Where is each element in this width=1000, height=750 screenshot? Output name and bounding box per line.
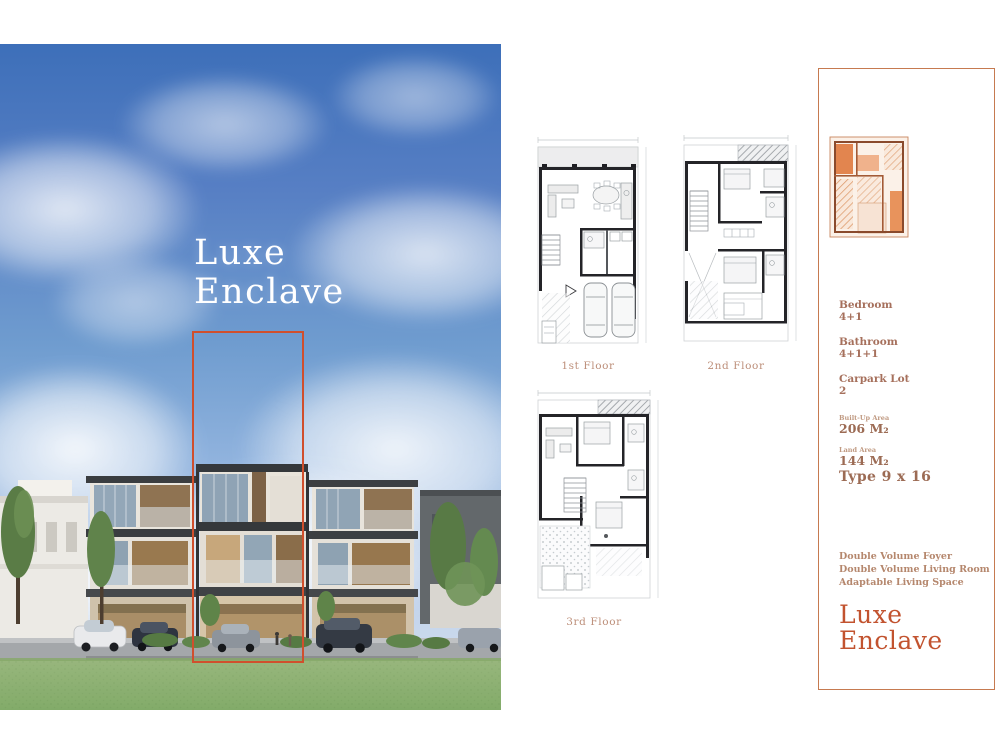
floor-plan-third-label: 3rd Floor xyxy=(520,616,668,628)
feature-item: Double Volume Foyer xyxy=(839,550,990,563)
spec-bathroom-label: Bathroom xyxy=(839,336,910,348)
brochure-page: Luxe Enclave xyxy=(0,0,1000,750)
unit-highlight-box xyxy=(192,331,304,663)
feature-item: Double Volume Living Room xyxy=(839,563,990,576)
hero-title: Luxe Enclave xyxy=(194,234,345,312)
spec-bedroom-label: Bedroom xyxy=(839,299,910,311)
spec-carpark-value: 2 xyxy=(839,385,910,397)
feature-list: Double Volume Foyer Double Volume Living… xyxy=(839,550,990,589)
floor-plan-second-drawing xyxy=(666,131,806,351)
spec-carpark-label: Carpark Lot xyxy=(839,373,910,385)
area-land-value: 144 M₂ xyxy=(839,454,889,468)
panel-title-line1: Luxe xyxy=(839,602,943,628)
floor-plan-third-drawing xyxy=(520,386,668,607)
spec-carpark: Carpark Lot 2 xyxy=(839,373,910,397)
hero-title-line1: Luxe xyxy=(194,234,345,273)
area-land: Land Area 144 M₂ xyxy=(839,447,889,468)
floor-plan-second-label: 2nd Floor xyxy=(666,360,806,372)
spec-bedroom-value: 4+1 xyxy=(839,311,910,323)
floor-plan-third: 3rd Floor xyxy=(520,386,668,628)
floor-plan-first-label: 1st Floor xyxy=(522,360,654,372)
spec-bathroom-value: 4+1+1 xyxy=(839,348,910,360)
spec-list: Bedroom 4+1 Bathroom 4+1+1 Carpark Lot 2 xyxy=(839,299,910,410)
floor-plan-first: 1st Floor xyxy=(522,133,654,372)
hero-title-line2: Enclave xyxy=(194,273,345,312)
hero-photo: Luxe Enclave xyxy=(0,44,501,710)
unit-type: Type 9 x 16 xyxy=(839,469,931,485)
panel-title-line2: Enclave xyxy=(839,628,943,654)
panel-title: Luxe Enclave xyxy=(839,602,943,654)
area-builtup-value: 206 M₂ xyxy=(839,422,889,436)
area-builtup: Built-Up Area 206 M₂ xyxy=(839,415,889,436)
info-panel: Bedroom 4+1 Bathroom 4+1+1 Carpark Lot 2… xyxy=(818,68,995,690)
unit-plan-thumbnail xyxy=(828,135,910,241)
spec-bedroom: Bedroom 4+1 xyxy=(839,299,910,323)
spec-bathroom: Bathroom 4+1+1 xyxy=(839,336,910,360)
floor-plan-first-drawing xyxy=(522,133,654,351)
feature-item: Adaptable Living Space xyxy=(839,576,990,589)
floor-plan-second: 2nd Floor xyxy=(666,131,806,372)
